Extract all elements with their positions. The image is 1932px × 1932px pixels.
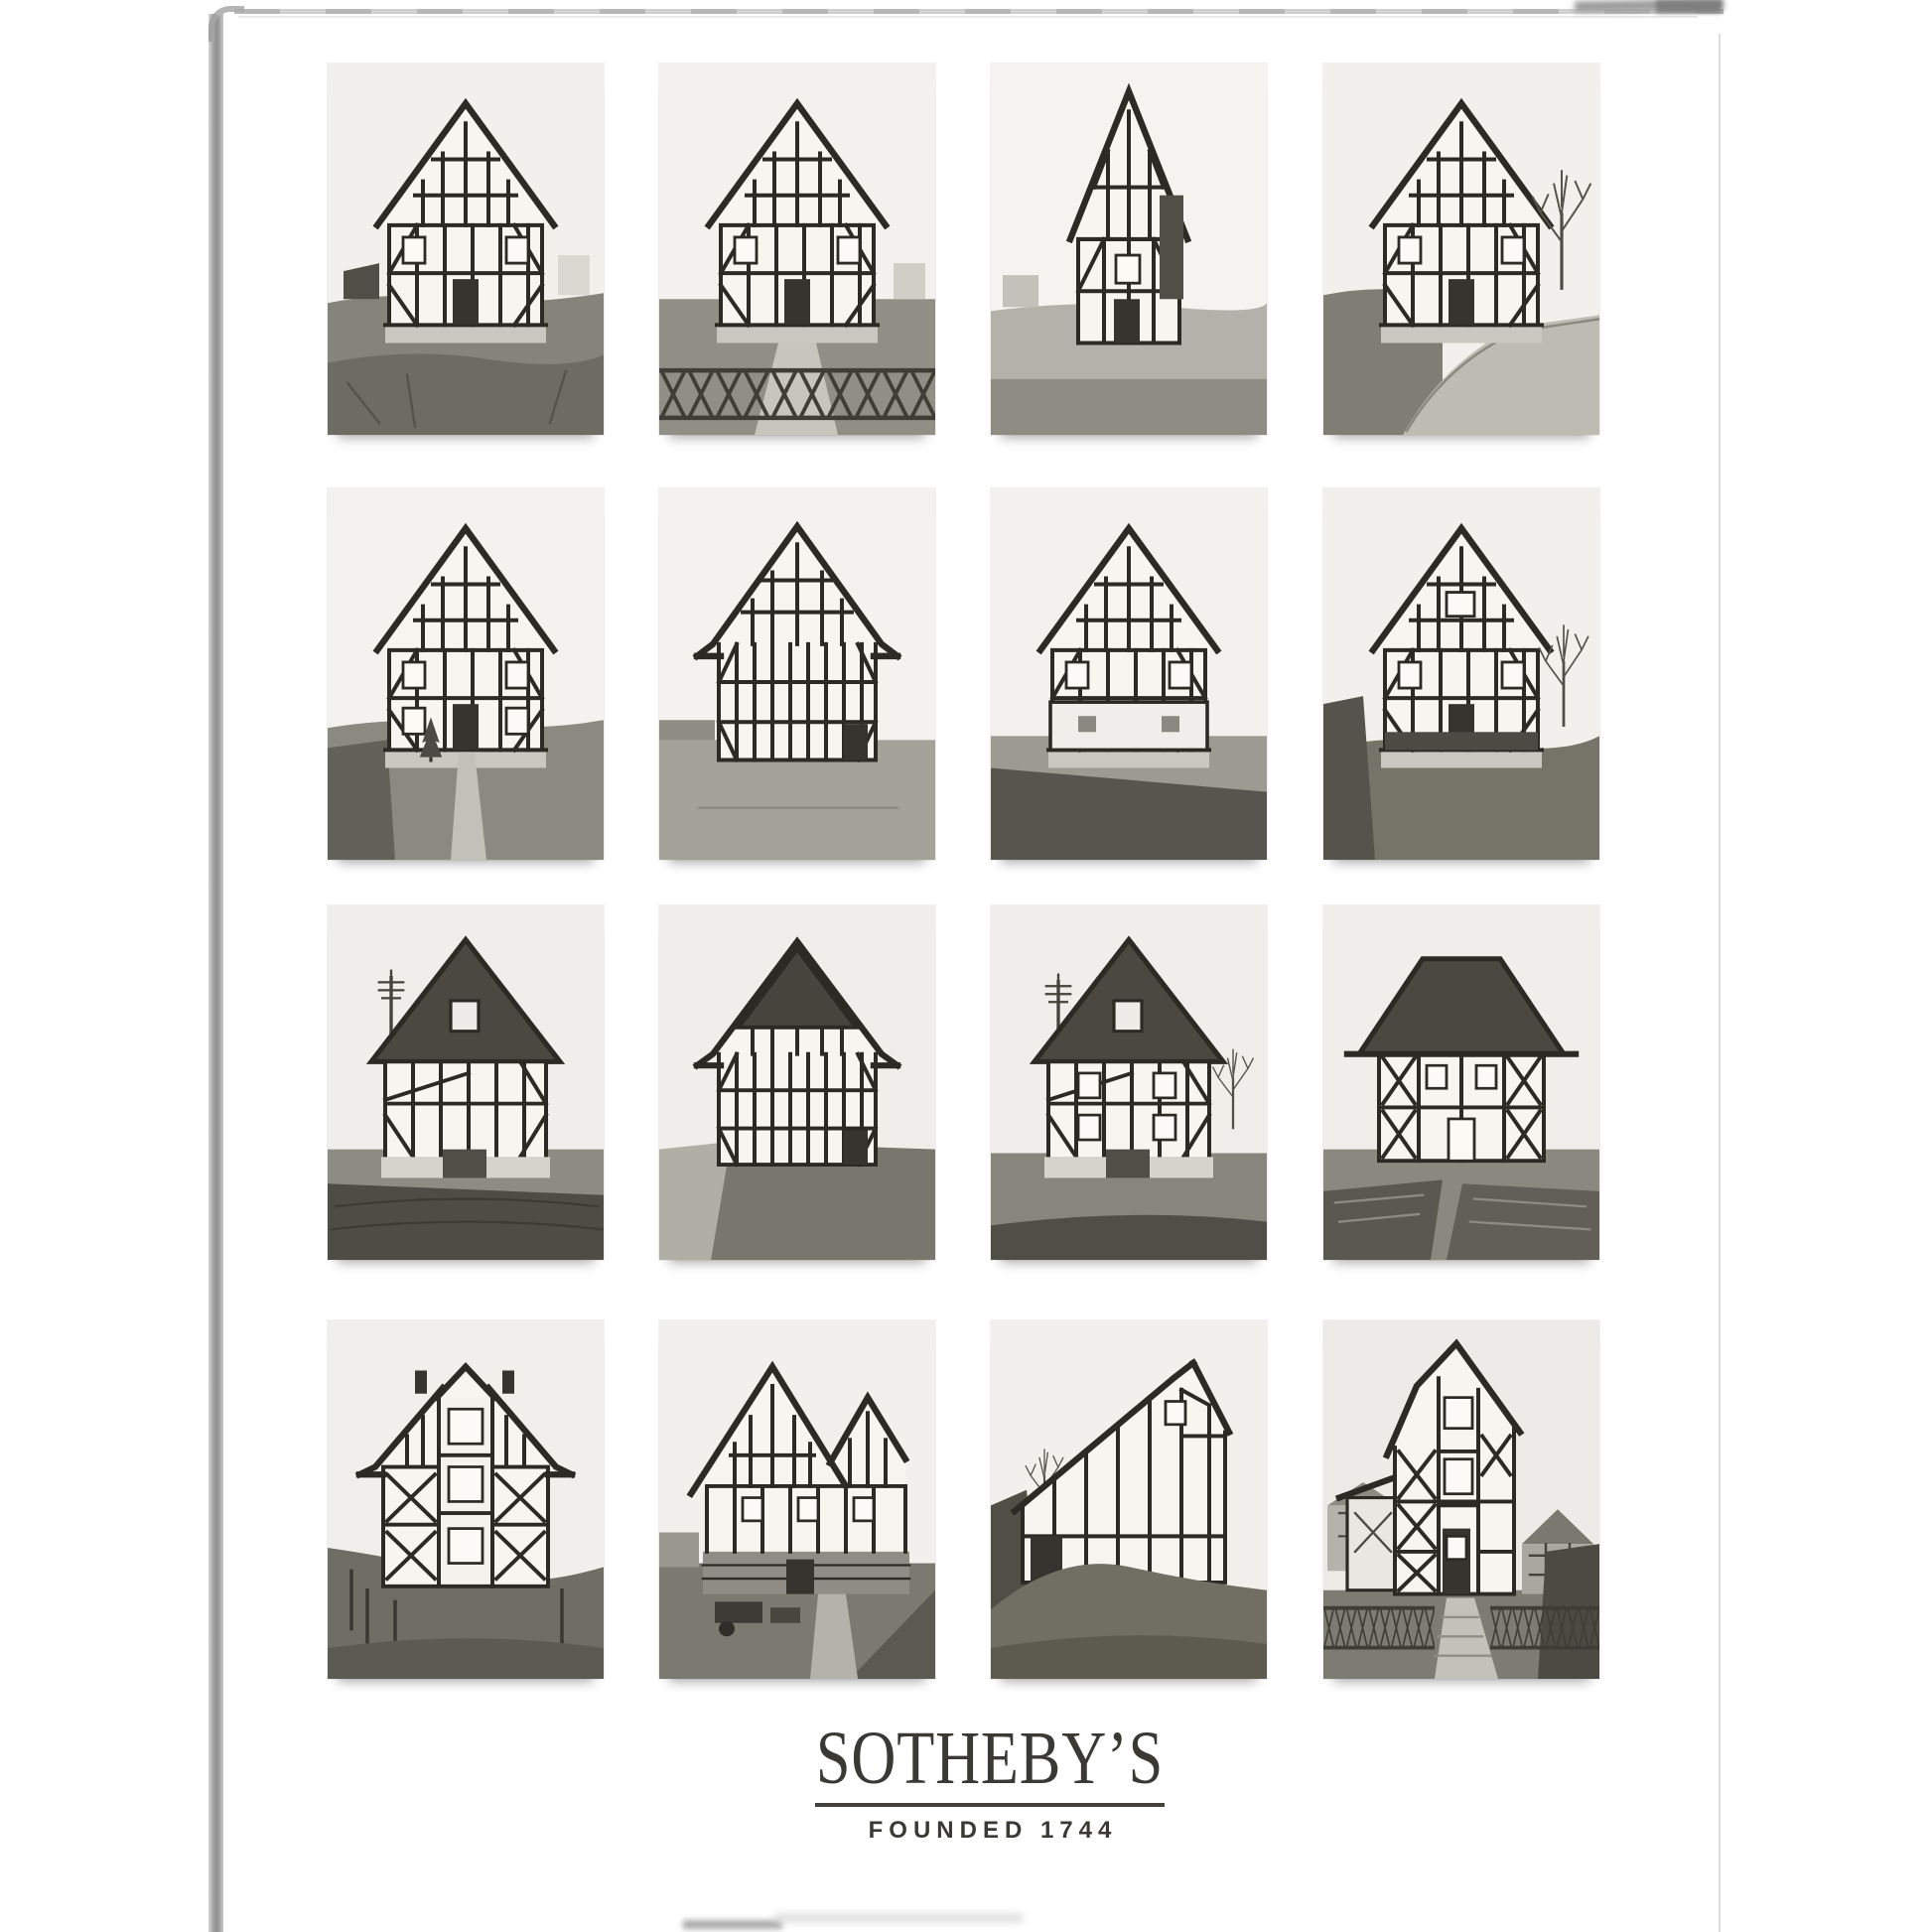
photo-r4c4 <box>1323 1320 1599 1679</box>
framework-house-photo-image <box>991 1320 1267 1679</box>
framework-house-photo-image <box>659 905 935 1260</box>
framework-house-photo-image <box>328 64 604 435</box>
scan-smudge-top-right-dark <box>1656 0 1722 13</box>
logo-rule <box>815 1803 1165 1807</box>
framework-house-photo-image <box>659 64 935 435</box>
framework-house-photo-image <box>659 488 935 860</box>
scan-smudge-bottom-light <box>774 1914 1023 1922</box>
photo-r4c1 <box>328 1320 604 1679</box>
photo-r3c4 <box>1323 905 1599 1260</box>
framework-house-photo-image <box>328 1320 604 1679</box>
photo-r1c4 <box>1323 64 1599 435</box>
photo-r4c3 <box>991 1320 1267 1679</box>
page-edge-right <box>1719 34 1721 1932</box>
framework-house-photo-image <box>1323 1320 1599 1679</box>
framework-house-photo-image <box>659 1320 935 1679</box>
framework-house-photo-image <box>1323 905 1599 1260</box>
logo-tagline: FOUNDED 1744 <box>692 1817 1288 1845</box>
photo-r2c4 <box>1323 488 1599 860</box>
photo-r1c3 <box>991 64 1267 435</box>
framework-house-photo-image <box>1323 64 1599 435</box>
framework-house-photo-image <box>991 488 1267 860</box>
sothebys-wordmark: SOTHEBY’S <box>746 1720 1234 1798</box>
page-edge-top <box>234 9 1724 14</box>
page-edge-top-shadow <box>238 16 1698 18</box>
photo-r3c2 <box>659 905 935 1260</box>
page-edge-left <box>208 14 223 1932</box>
photo-r4c2 <box>659 1320 935 1679</box>
framework-house-photo-image <box>1323 488 1599 860</box>
photo-r2c3 <box>991 488 1267 860</box>
framework-house-photo-image <box>991 905 1267 1260</box>
photo-r3c3 <box>991 905 1267 1260</box>
framework-house-photo-image <box>991 64 1267 435</box>
photo-r1c2 <box>659 64 935 435</box>
photo-r3c1 <box>328 905 604 1260</box>
photo-r2c2 <box>659 488 935 860</box>
photo-r2c1 <box>328 488 604 860</box>
photo-r1c1 <box>328 64 604 435</box>
framework-house-photo-image <box>328 488 604 860</box>
framework-house-photo-image <box>328 905 604 1260</box>
scan-smudge-bottom <box>683 1920 782 1929</box>
sothebys-logo: SOTHEBY’S FOUNDED 1744 <box>692 1720 1288 1845</box>
